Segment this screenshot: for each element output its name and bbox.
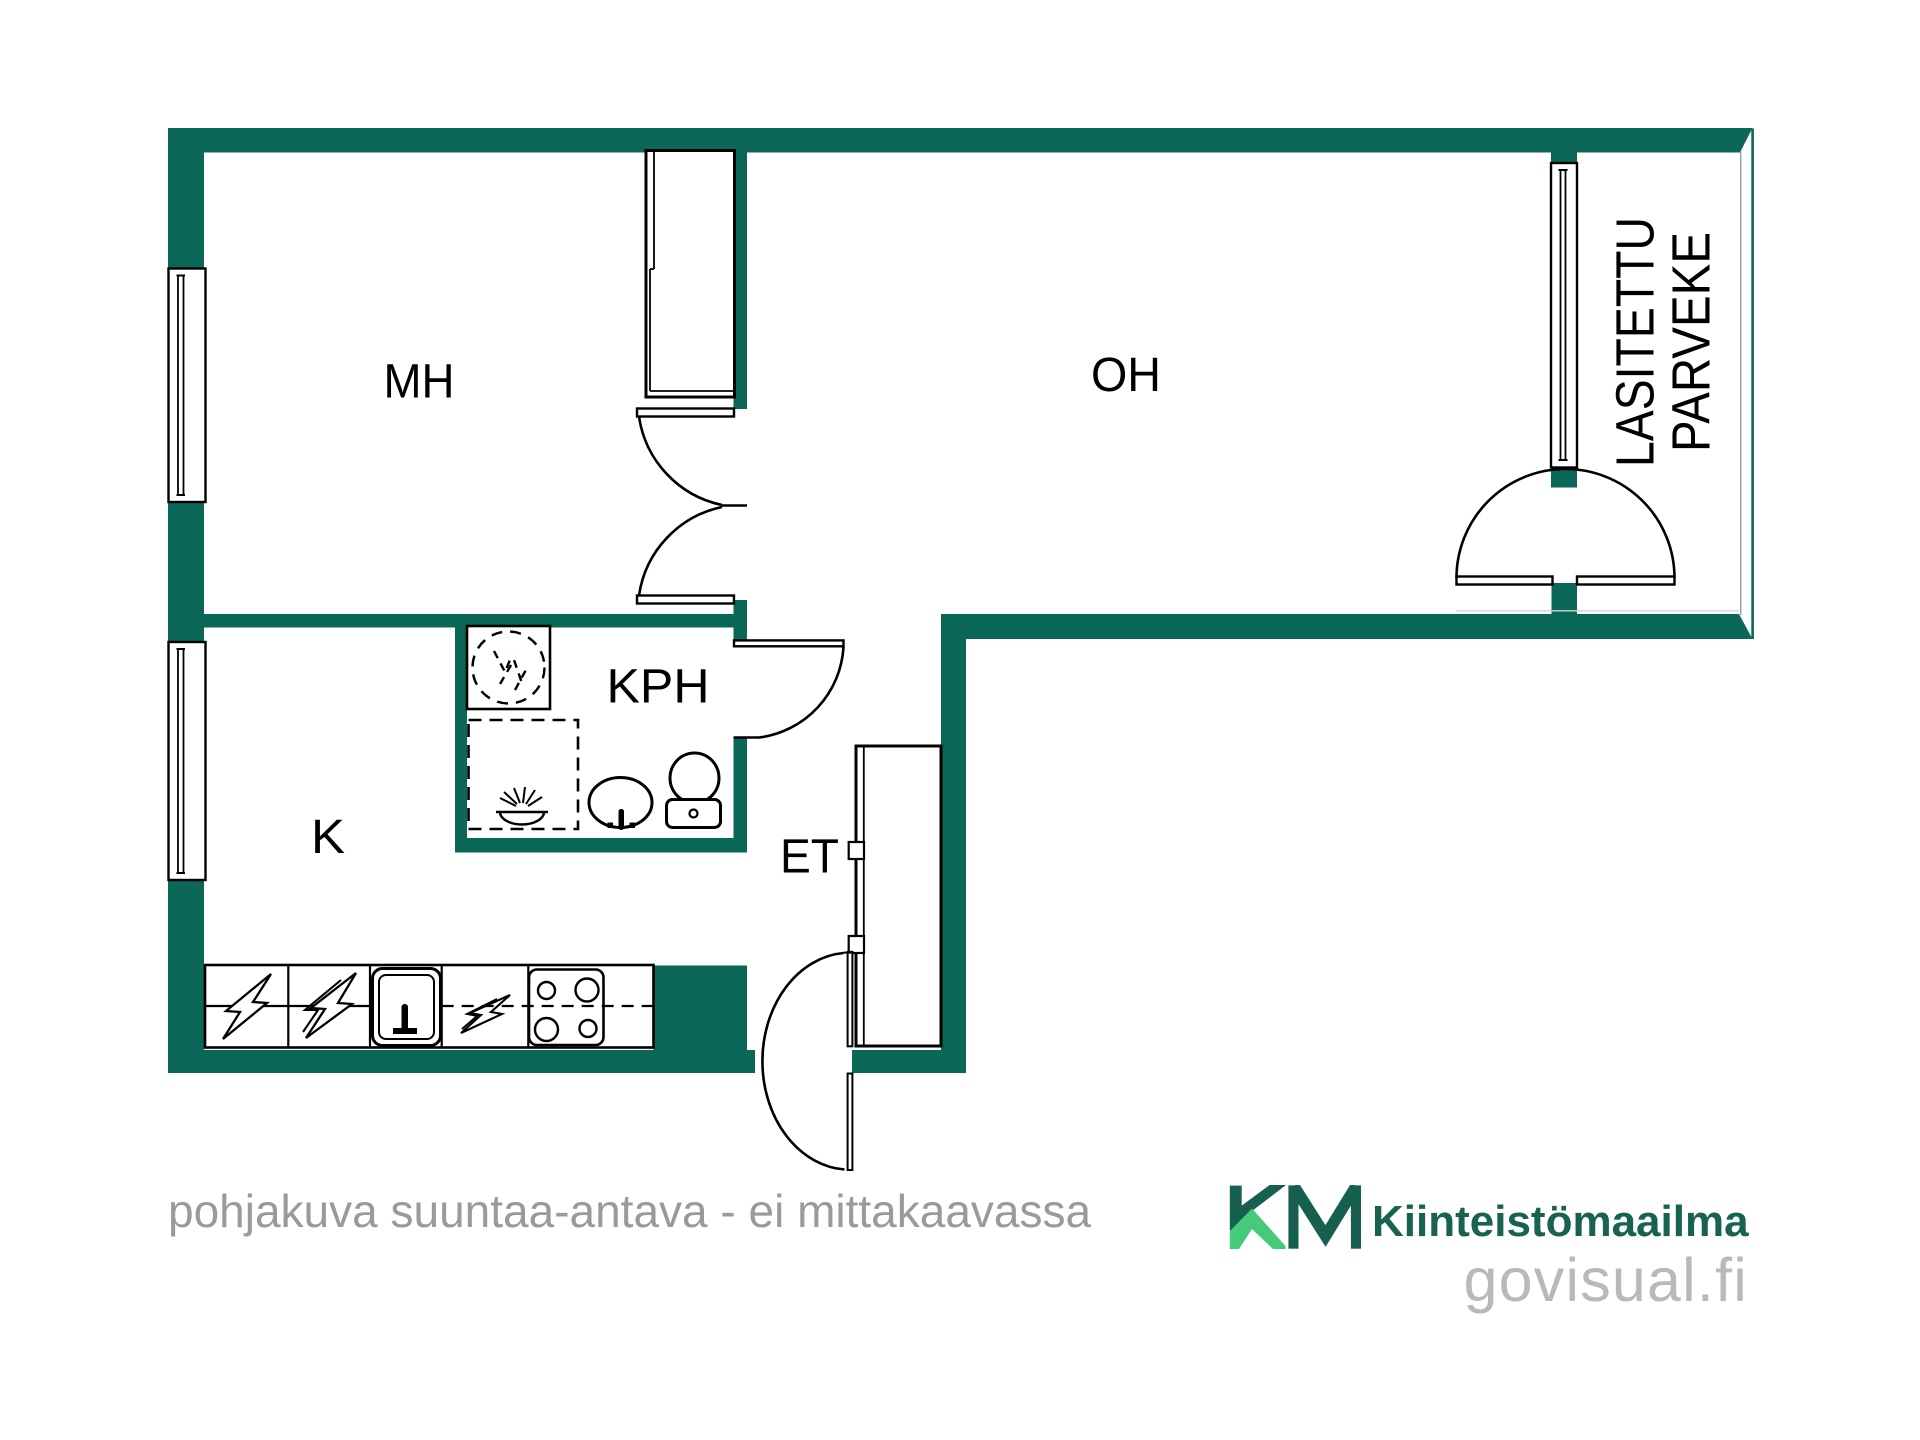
- svg-text:LASITETTU: LASITETTU: [1606, 217, 1666, 467]
- svg-text:pohjakuva suuntaa-antava - ei: pohjakuva suuntaa-antava - ei mittakaava…: [168, 1185, 1092, 1237]
- svg-text:Kiinteistömaailma: Kiinteistömaailma: [1372, 1197, 1749, 1246]
- svg-text:MH: MH: [384, 356, 455, 409]
- svg-text:KPH: KPH: [607, 661, 710, 714]
- svg-text:OH: OH: [1091, 349, 1161, 402]
- svg-text:ET: ET: [780, 831, 839, 884]
- svg-text:K: K: [311, 811, 345, 864]
- svg-text:govisual.fi: govisual.fi: [1464, 1246, 1748, 1314]
- svg-text:PARVEKE: PARVEKE: [1662, 232, 1722, 452]
